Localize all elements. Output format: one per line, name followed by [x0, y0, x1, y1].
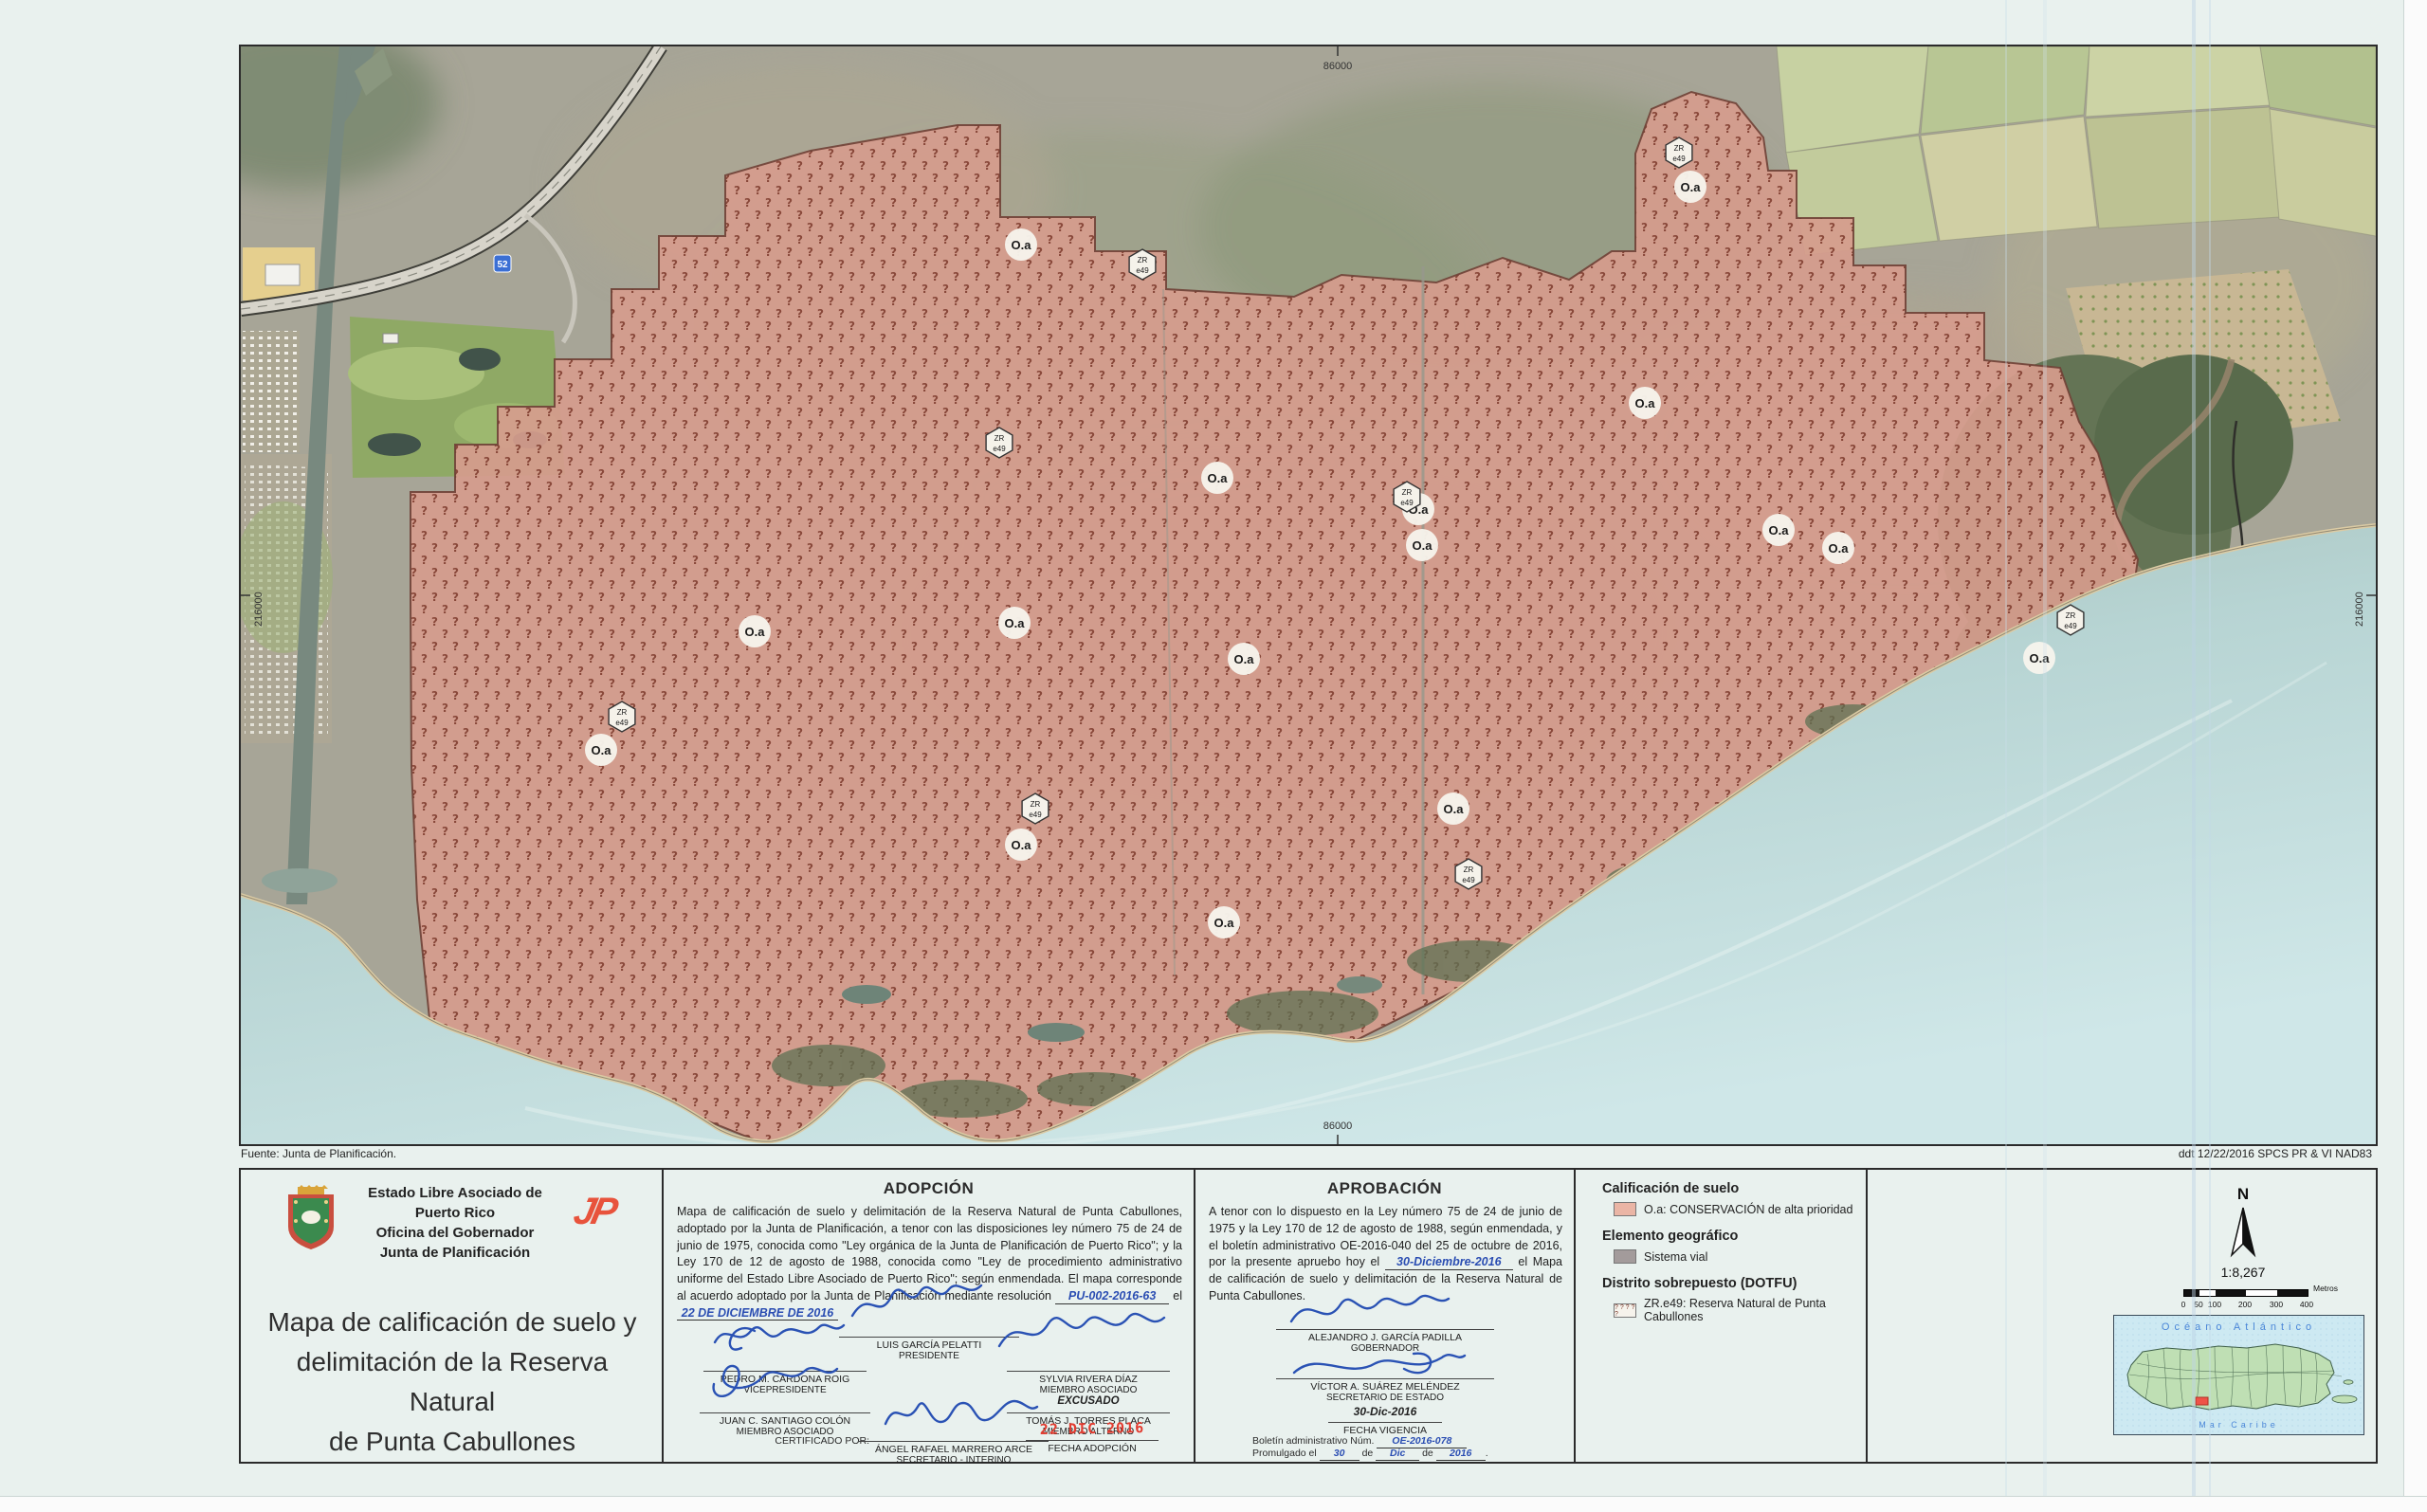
signatory-name: SYLVIA RIVERA DÍAZ: [1007, 1371, 1170, 1385]
signatory-pedro: PEDRO M. CARDONA ROIG VICEPRESIDENTE: [703, 1371, 867, 1395]
agency-line: Estado Libre Asociado de Puerto Rico: [352, 1183, 558, 1223]
sea-label: Mar Caribe: [2114, 1420, 2363, 1430]
signatory-title: PRESIDENTE: [839, 1351, 1019, 1361]
map-sheet: ? ?: [0, 0, 2427, 1512]
zr-badge-line1: ZR: [1031, 800, 1041, 809]
signatory-name: PEDRO M. CARDONA ROIG: [703, 1371, 867, 1385]
zr-badge-line1: ZR: [1402, 488, 1413, 497]
svg-text:52: 52: [497, 260, 508, 270]
agency-line: Oficina del Gobernador: [352, 1223, 558, 1243]
zr-badge-line2: e49: [993, 445, 1006, 453]
excusado-note: EXCUSADO: [1031, 1395, 1145, 1407]
zr-badge-line1: ZR: [1464, 865, 1474, 874]
grid-label-left: 216000: [253, 592, 265, 627]
resolution-date-handwritten: 22 DE DICIEMBRE DE 2016: [682, 1306, 833, 1320]
oa-zone-badge: O.a: [1228, 643, 1260, 675]
legend-swatch-overlay: ? ? ? ? ?: [1614, 1303, 1636, 1318]
signatory-sylvia: SYLVIA RIVERA DÍAZ MIEMBRO ASOCIADO: [1007, 1371, 1170, 1395]
adoption-date-stamp: 22 DIC 2016 FECHA ADOPCIÓN: [1026, 1420, 1159, 1454]
map-title-line: de Punta Cabullones: [253, 1422, 651, 1462]
zr-overlay-badge: ZRe49: [1666, 137, 1692, 168]
reserve-pond: [1337, 976, 1382, 993]
zr-badge-line2: e49: [1029, 811, 1042, 819]
signatory-gobernador: ALEJANDRO J. GARCÍA PADILLA GOBERNADOR: [1276, 1329, 1494, 1354]
de-label: de: [1422, 1448, 1433, 1459]
oa-zone-badge: O.a: [998, 607, 1031, 639]
locator-map: Océano Atlántico Mar Caribe: [2113, 1315, 2364, 1435]
approval-header: APROBACIÓN: [1195, 1179, 1574, 1198]
legend-header-distrito: Distrito sobrepuesto (DOTFU): [1602, 1276, 1797, 1291]
map-title-line: delimitación de la Reserva Natural: [253, 1342, 651, 1422]
scale-bar: [2183, 1289, 2308, 1297]
golf-pond: [459, 348, 501, 371]
adoption-header: ADOPCIÓN: [664, 1179, 1194, 1198]
north-arrow-icon: [2224, 1206, 2262, 1259]
zr-badge-line2: e49: [615, 719, 629, 727]
legend-header-calificacion: Calificación de suelo: [1602, 1181, 1739, 1196]
promulgado-label: Promulgado el: [1252, 1448, 1317, 1459]
legend-section: Calificación de suelo O.a: CONSERVACIÓN …: [1576, 1170, 1868, 1462]
signatory-name: ALEJANDRO J. GARCÍA PADILLA: [1276, 1329, 1494, 1343]
signatory-luis: LUIS GARCÍA PELATTI PRESIDENTE: [839, 1337, 1019, 1361]
oa-zone-badge: O.a: [1762, 514, 1795, 546]
scale-tick: 200: [2238, 1300, 2252, 1309]
oa-badge-label: O.a: [592, 743, 612, 757]
period: .: [1486, 1448, 1488, 1459]
signatory-juan: JUAN C. SANTIAGO COLÓN MIEMBRO ASOCIADO: [700, 1412, 870, 1437]
promulgado-row: Promulgado el 30 de Dic de 2016.: [1252, 1448, 1488, 1461]
signatory-angel: ÁNGEL RAFAEL MARRERO ARCE SECRETARIO - I…: [859, 1441, 1049, 1466]
oa-zone-badge: O.a: [1005, 228, 1037, 261]
zr-badge-line2: e49: [1136, 266, 1149, 275]
signatory-title: MIEMBRO ASOCIADO: [1007, 1385, 1170, 1395]
adoption-body: Mapa de calificación de suelo y delimita…: [677, 1205, 1182, 1303]
oa-badge-label: O.a: [1829, 541, 1850, 556]
zr-badge-line2: e49: [2064, 622, 2077, 630]
oa-badge-label: O.a: [1005, 616, 1026, 630]
oa-zone-badge: O.a: [1437, 792, 1469, 825]
paper-edge: [0, 1496, 2427, 1512]
boletin-label: Boletín administrativo Núm.: [1252, 1435, 1374, 1447]
oa-badge-label: O.a: [1012, 238, 1032, 252]
zr-badge-line1: ZR: [995, 434, 1005, 443]
oa-badge-label: O.a: [745, 625, 766, 639]
legend-label: Sistema vial: [1644, 1250, 1707, 1264]
adoption-section: ADOPCIÓN Mapa de calificación de suelo y…: [664, 1170, 1195, 1462]
source-note: Fuente: Junta de Planificación.: [241, 1147, 396, 1160]
zr-badge-line1: ZR: [1138, 256, 1148, 264]
oa-zone-badge: O.a: [2023, 642, 2055, 674]
legend-swatch-conservacion: [1614, 1202, 1636, 1216]
oa-badge-label: O.a: [1413, 538, 1433, 553]
oa-zone-badge: O.a: [1629, 387, 1661, 419]
ocean-label: Océano Atlántico: [2114, 1321, 2363, 1333]
reserve-pond: [1028, 1023, 1085, 1042]
zr-badge-line2: e49: [1400, 499, 1414, 507]
zr-overlay-badge: ZRe49: [609, 701, 635, 732]
map-title: Mapa de calificación de suelo y delimita…: [253, 1303, 651, 1462]
zr-overlay-badge: ZRe49: [1455, 859, 1482, 889]
paper-edge: [2403, 0, 2427, 1512]
oa-badge-label: O.a: [1208, 471, 1229, 485]
boletin-number-handwritten: OE-2016-078: [1392, 1435, 1451, 1447]
map-extent-marker: [2196, 1397, 2208, 1405]
scale-tick: 400: [2300, 1300, 2313, 1309]
oa-badge-label: O.a: [1769, 523, 1790, 537]
reserve-pond: [842, 985, 891, 1004]
golf-pond: [368, 433, 421, 456]
approval-date-handwritten: 30-Diciembre-2016: [1396, 1255, 1501, 1268]
oa-zone-badge: O.a: [1208, 906, 1240, 938]
oa-badge-label: O.a: [1635, 396, 1656, 410]
scale-tick: 300: [2270, 1300, 2283, 1309]
certified-by-label: CERTIFICADO POR:: [744, 1435, 869, 1447]
signatory-title: GOBERNADOR: [1276, 1343, 1494, 1354]
title-block-panel: Estado Libre Asociado de Puerto Rico Ofi…: [239, 1168, 2378, 1464]
signatory-name: ÁNGEL RAFAEL MARRERO ARCE: [859, 1441, 1049, 1455]
grid-label-top: 86000: [1323, 61, 1353, 72]
title-section: Estado Libre Asociado de Puerto Rico Ofi…: [241, 1170, 664, 1462]
signatory-name: VÍCTOR A. SUÁREZ MELÉNDEZ: [1276, 1378, 1494, 1393]
scale-text: 1:8,267: [2221, 1265, 2266, 1280]
agency-name: Estado Libre Asociado de Puerto Rico Ofi…: [352, 1183, 558, 1263]
approval-text: A tenor con lo dispuesto en la Ley númer…: [1209, 1204, 1562, 1305]
scale-tick: 50: [2194, 1300, 2202, 1309]
oa-zone-badge: O.a: [1406, 529, 1438, 561]
vigencia-label-block: FECHA VIGENCIA: [1328, 1422, 1442, 1436]
de-label: de: [1362, 1448, 1374, 1459]
resolution-label: resolución: [997, 1289, 1051, 1303]
pr-coat-of-arms-icon: [284, 1185, 338, 1251]
signatory-name: JUAN C. SANTIAGO COLÓN: [700, 1412, 870, 1427]
legend-label: O.a: CONSERVACIÓN de alta prioridad: [1644, 1203, 1852, 1216]
oa-badge-label: O.a: [2030, 651, 2051, 665]
clubhouse: [383, 334, 398, 343]
scale-tick: 100: [2208, 1300, 2221, 1309]
culebra-island: [2344, 1380, 2353, 1384]
vigencia-date-handwritten: 30-Dic-2016: [1323, 1405, 1447, 1418]
legend-header-elemento: Elemento geográfico: [1602, 1229, 1738, 1244]
zr-overlay-badge: ZRe49: [986, 428, 1013, 458]
legend-item-oa: O.a: CONSERVACIÓN de alta prioridad: [1614, 1202, 1852, 1216]
vigencia-label: FECHA VIGENCIA: [1328, 1422, 1442, 1436]
zr-badge-line1: ZR: [2066, 611, 2076, 620]
puerto-rico-inset: [2114, 1316, 2363, 1434]
signatory-title: SECRETARIO DE ESTADO: [1276, 1393, 1494, 1403]
stamp-date: 22 DIC 2016: [1026, 1419, 1159, 1438]
agency-line: Junta de Planificación: [352, 1243, 558, 1263]
resolution-number-handwritten: PU-002-2016-63: [1068, 1289, 1156, 1303]
route-shield-icon: 52: [494, 255, 511, 272]
promulgado-year-handwritten: 2016: [1450, 1448, 1471, 1459]
aerial-map: ? ?: [241, 46, 2376, 1144]
zr-badge-line1: ZR: [1674, 144, 1685, 153]
promulgado-day-handwritten: 30: [1334, 1448, 1345, 1459]
scale-tick: 0: [2181, 1300, 2186, 1309]
vieques-island: [2332, 1395, 2357, 1403]
jp-logo: JP: [571, 1193, 617, 1230]
zr-badge-line1: ZR: [617, 708, 628, 717]
map-title-line: Mapa de calificación de suelo y: [253, 1303, 651, 1342]
legend-label: ZR.e49: Reserva Natural de Punta Cabullo…: [1644, 1297, 1866, 1323]
oa-zone-badge: O.a: [739, 615, 771, 647]
oa-zone-badge: O.a: [1201, 462, 1233, 494]
north-label: N: [2237, 1185, 2249, 1204]
oa-zone-badge: O.a: [1822, 532, 1854, 564]
oa-badge-label: O.a: [1444, 802, 1465, 816]
boletin-row: Boletín administrativo Núm. OE-2016-078: [1252, 1435, 1467, 1448]
signatory-title: SECRETARIO - INTERINO: [859, 1455, 1049, 1466]
oa-zone-badge: O.a: [1674, 171, 1706, 203]
oa-zone-badge: O.a: [1005, 829, 1037, 861]
oa-badge-label: O.a: [1214, 916, 1235, 930]
tools-section: N 1:8,267 0 50 100 200 300 400 Metros: [1868, 1170, 2376, 1462]
map-canvas: ? ?: [239, 45, 2378, 1146]
legend-item-zre49: ? ? ? ? ? ZR.e49: Reserva Natural de Pun…: [1614, 1297, 1866, 1323]
oa-badge-label: O.a: [1681, 180, 1702, 194]
zr-overlay-badge: ZRe49: [1129, 249, 1156, 280]
coastal-lagoon: [262, 868, 338, 893]
signatory-title: VICEPRESIDENTE: [703, 1385, 867, 1395]
grid-label-right: 216000: [2354, 592, 2365, 627]
legend-swatch-vial: [1614, 1249, 1636, 1264]
signatory-secretario: VÍCTOR A. SUÁREZ MELÉNDEZ SECRETARIO DE …: [1276, 1378, 1494, 1403]
promulgado-month-handwritten: Dic: [1390, 1448, 1405, 1459]
oa-zone-badge: O.a: [585, 734, 617, 766]
zr-overlay-badge: ZRe49: [1394, 482, 1420, 512]
zr-overlay-badge: ZRe49: [1022, 793, 1049, 824]
scale-unit-label: Metros: [2313, 1284, 2338, 1293]
signatory-name: LUIS GARCÍA PELATTI: [839, 1337, 1019, 1351]
stamp-caption: FECHA ADOPCIÓN: [1026, 1440, 1159, 1454]
grid-label-bottom: 86000: [1323, 1120, 1353, 1132]
approval-section: APROBACIÓN A tenor con lo dispuesto en l…: [1195, 1170, 1576, 1462]
legend-item-vial: Sistema vial: [1614, 1249, 1707, 1264]
zr-badge-line2: e49: [1672, 155, 1686, 163]
oa-badge-label: O.a: [1234, 652, 1255, 666]
adoption-text: Mapa de calificación de suelo y delimita…: [677, 1204, 1182, 1321]
el-label: el: [1173, 1289, 1182, 1303]
zr-overlay-badge: ZRe49: [2057, 605, 2084, 635]
zr-badge-line2: e49: [1462, 876, 1475, 884]
oa-badge-label: O.a: [1012, 838, 1032, 852]
projection-note: ddt 12/22/2016 SPCS PR & VI NAD83: [2179, 1147, 2372, 1160]
